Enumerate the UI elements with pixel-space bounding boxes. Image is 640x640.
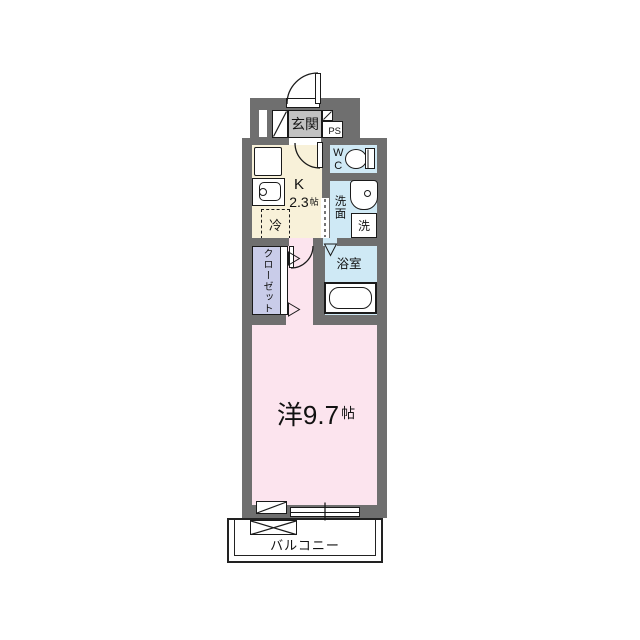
kitchen-sink-icon (252, 178, 285, 206)
hatch-box-icon (256, 501, 287, 514)
entry-door-leaf (315, 73, 321, 104)
washing-machine-label: 洗 (358, 217, 370, 234)
refrigerator-space: 冷 (261, 209, 290, 239)
kitchen-size-unit: 帖 (310, 195, 319, 208)
toilet-label: WC (331, 146, 344, 173)
outdoor-unit-box-icon (250, 520, 297, 535)
kitchen-label: K (290, 176, 308, 193)
main-room-label: 洋9.7帖 (258, 398, 374, 428)
bathroom-label: 浴室 (329, 254, 369, 270)
wall-segment (242, 238, 289, 246)
refrigerator-label: 冷 (269, 215, 282, 234)
pipe-space: PS (322, 121, 343, 138)
closet-door (280, 246, 288, 315)
wall-segment (320, 315, 387, 325)
washbasin-icon (350, 180, 378, 210)
shoe-cabinet-icon (272, 110, 288, 138)
toilet-bowl-icon (345, 149, 367, 169)
sliding-door-slot (321, 198, 329, 238)
sink-faucet-icon (259, 188, 267, 196)
main-room-size-unit: 帖 (341, 403, 355, 423)
washroom-label: 洗面 (333, 191, 346, 223)
wall-segment (337, 238, 387, 246)
floor-plan: 玄関 PS 冷 K 2.3帖 WC 洗面 洗 クローゼット (0, 0, 640, 640)
bathroom-door-opening (323, 238, 337, 246)
corner-hatch-icon (322, 110, 333, 121)
washbasin-faucet-icon (364, 190, 371, 197)
closet-area: クローゼット (252, 246, 281, 315)
closet-label: クローゼット (259, 248, 274, 314)
balcony-sliding-window (290, 507, 360, 517)
entrance-window (259, 110, 267, 137)
pipe-space-label: PS (328, 126, 341, 137)
kitchen-door-leaf (317, 142, 323, 168)
room-door-leaf (289, 246, 294, 268)
entrance-label: 玄関 (291, 114, 319, 134)
wall-segment (242, 315, 286, 325)
kitchen-size-label: 2.3帖 (284, 194, 324, 209)
bathtub-icon (324, 282, 377, 314)
entrance-area: 玄関 (288, 110, 322, 138)
balcony-label: バルコニー (245, 536, 365, 552)
bathtub-inner-icon (329, 287, 372, 309)
cooktop-icon (254, 147, 282, 176)
window-center-line (291, 512, 359, 513)
washing-machine-space: 洗 (351, 213, 377, 238)
toilet-tank-icon (365, 148, 375, 169)
